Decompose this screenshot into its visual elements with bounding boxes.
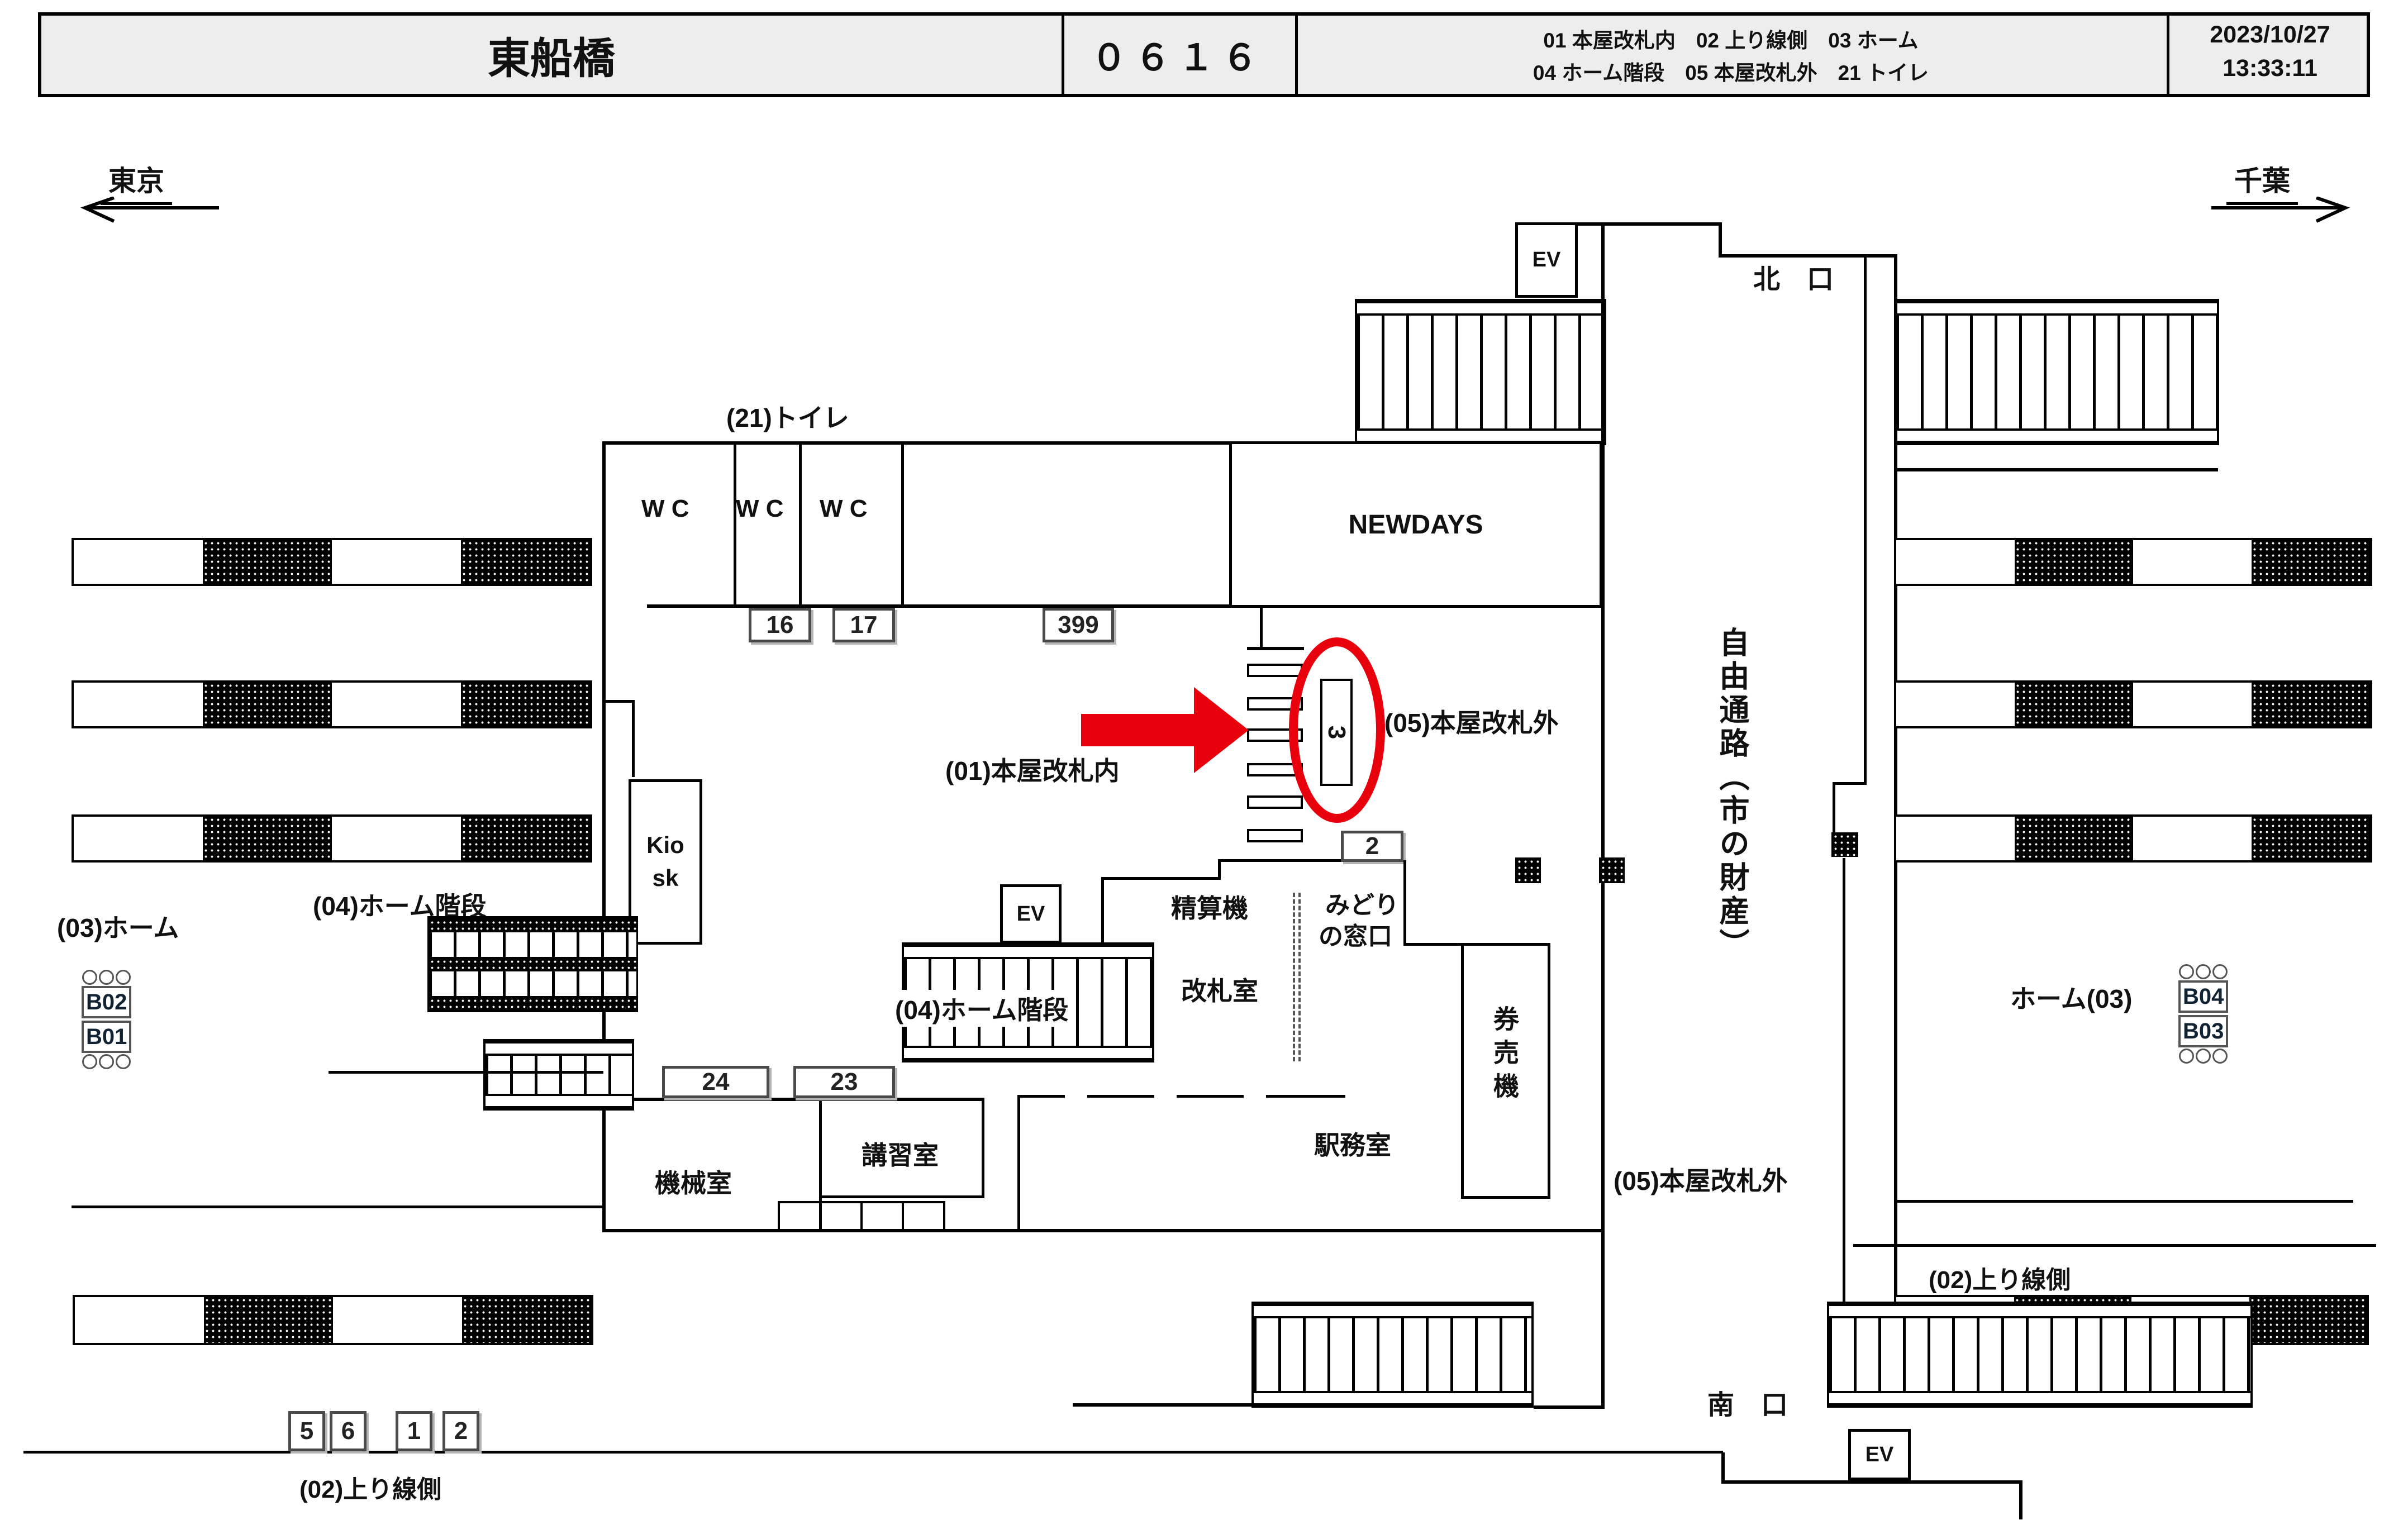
platform-roof-segment <box>203 817 332 860</box>
sign-circles <box>2179 964 2228 979</box>
wall <box>902 1201 904 1232</box>
east-arrow-icon <box>2207 197 2352 230</box>
north-stairs-east <box>1894 299 2219 445</box>
stair-rail <box>1829 1391 2250 1405</box>
corridor-east-inner-wall <box>1864 254 1867 785</box>
platform-bar <box>73 1295 593 1345</box>
gate-office-dashed-boundary <box>1293 893 1301 1061</box>
wall <box>1534 1405 1605 1409</box>
wall <box>901 441 904 607</box>
camera-1-number: 1 <box>407 1417 421 1445</box>
stair-rail <box>1829 1304 2250 1318</box>
wc-label-2: W C <box>736 495 784 523</box>
track-line <box>329 1071 603 1074</box>
wall <box>1403 943 1550 946</box>
midori-window-label-line1: みどり <box>1325 885 1399 921</box>
platform-roof-segment <box>2252 683 2370 726</box>
platform-bar <box>1894 680 2372 728</box>
wall <box>819 1098 822 1232</box>
platform-roof-segment <box>2015 817 2133 860</box>
platform-segment <box>2133 683 2252 726</box>
stair-rail <box>429 918 636 932</box>
elevator-center: EV <box>1000 884 1062 944</box>
wall <box>1578 222 1719 226</box>
wall <box>1218 859 1345 862</box>
wall <box>799 441 802 607</box>
outside-gates-label-upper: (05)本屋改札外 <box>1384 703 1559 740</box>
wall <box>1087 1095 1154 1098</box>
header-bar: 東船橋 ０６１６ 01 本屋改札内 02 上り線側 03 ホーム 04 ホーム階… <box>38 12 2370 97</box>
platform-segment <box>74 540 203 584</box>
west-platform-stairs-lower <box>483 1039 634 1111</box>
track-line <box>1853 1244 2376 1247</box>
kiosk-label-line2: sk <box>653 862 679 895</box>
kiosk-label-line1: Kio <box>646 829 684 862</box>
platform-roof-segment <box>462 1297 591 1343</box>
newdays-store: NEWDAYS <box>1229 441 1602 608</box>
machine-room-label: 機械室 <box>655 1163 732 1200</box>
platform-stairs-center-label: (04)ホーム階段 <box>893 990 1070 1027</box>
pillar <box>1515 857 1541 883</box>
camera-box-B01[interactable]: B01 <box>82 1021 131 1053</box>
wall <box>632 700 635 777</box>
location-codes-line2: 04 ホーム階段 05 本屋改札外 21 トイレ <box>1295 56 2167 86</box>
stair-rail <box>429 996 636 1011</box>
outside-gates-label-lower: (05)本屋改札外 <box>1614 1161 1788 1198</box>
kiosk: Kio sk <box>629 779 702 945</box>
platform-bar <box>1894 538 2372 586</box>
midori-window-label-line2: の窓口 <box>1319 916 1392 952</box>
platform-segment <box>332 817 461 860</box>
wall <box>1403 860 1406 945</box>
newdays-label: NEWDAYS <box>1349 509 1483 540</box>
camera-5-number: 5 <box>300 1417 313 1445</box>
wall <box>1833 782 1866 785</box>
wall <box>1461 943 1464 1199</box>
wall <box>1719 222 1722 258</box>
platform-bar <box>72 680 592 728</box>
wall <box>1894 468 2218 471</box>
training-room-label: 講習室 <box>862 1135 939 1172</box>
camera-6-number: 6 <box>341 1417 355 1445</box>
platform-segment <box>75 1297 204 1343</box>
platform-roof-segment <box>204 1297 333 1343</box>
camera-box-B03[interactable]: B03 <box>2178 1015 2228 1047</box>
ticket-gate <box>1247 829 1303 842</box>
stair-treads <box>429 971 636 996</box>
wall <box>1833 782 1835 833</box>
stair-treads <box>1896 316 2217 428</box>
camera-box-B04[interactable]: B04 <box>2178 980 2228 1013</box>
pillar <box>1599 857 1625 883</box>
track-line <box>1894 1200 2353 1203</box>
platform-roof-segment <box>461 817 590 860</box>
platform-roof-segment <box>2252 540 2370 584</box>
stair-rail <box>904 945 1152 959</box>
sign-circles <box>82 970 131 985</box>
platform-roof-segment <box>203 683 332 726</box>
platform-segment <box>1896 540 2015 584</box>
camera-B03-number: B03 <box>2183 1019 2224 1043</box>
platform-segment <box>333 1297 462 1343</box>
stair-rail <box>1896 428 2217 443</box>
west-platform-stairs-upper <box>427 916 638 1012</box>
wall <box>1073 1403 1254 1407</box>
stair-rail <box>1357 301 1604 316</box>
platform-segment <box>74 683 203 726</box>
station-office-label: 駅務室 <box>1314 1125 1391 1162</box>
stair-rail <box>904 1046 1152 1060</box>
platform-roof-segment <box>2015 683 2133 726</box>
sign-circles <box>82 1054 131 1069</box>
stair-treads <box>486 1056 632 1094</box>
track-line <box>23 1451 1723 1454</box>
south-stairs-west <box>1251 1302 1534 1408</box>
wall <box>1020 1095 1065 1098</box>
platform-segment <box>1896 817 2015 860</box>
wall <box>1101 877 1221 880</box>
camera-box-2-midori[interactable]: 2 <box>1341 831 1403 862</box>
elevator-center-label: EV <box>1017 902 1045 926</box>
platform-segment <box>332 683 461 726</box>
camera-box-2-track[interactable]: 2 <box>442 1411 479 1451</box>
north-exit-label: 北 口 <box>1698 254 1888 299</box>
sign-b04-b03: B04 B03 <box>2178 964 2228 1064</box>
wall <box>1843 858 1845 1305</box>
pillar <box>1831 832 1858 857</box>
platform-bar <box>72 814 592 863</box>
building-south-wall <box>602 1229 1605 1232</box>
south-stairs-east <box>1827 1302 2253 1408</box>
stair-treads <box>1829 1318 2250 1391</box>
inside-gates-label: (01)本屋改札内 <box>945 751 1120 788</box>
highlight-circle-icon <box>1285 634 1391 827</box>
sign-circles <box>2179 1049 2228 1064</box>
stair-rail <box>1254 1391 1531 1405</box>
camera-B01-number: B01 <box>86 1025 127 1049</box>
stair-rail <box>1896 301 2217 316</box>
toilet-label: (21)トイレ <box>726 398 849 435</box>
platform-roof-segment <box>2015 540 2133 584</box>
platform-bar <box>1894 814 2372 863</box>
camera-box-16[interactable]: 16 <box>749 608 811 642</box>
platform-03-east-label: ホーム(03) <box>2010 979 2132 1016</box>
camera-B04-number: B04 <box>2183 984 2224 1009</box>
up-line-west-label: (02)上り線側 <box>299 1469 441 1505</box>
stair-rail <box>429 957 636 971</box>
free-passage-label: 自由通路（市の財産） <box>1710 627 1754 1018</box>
wall <box>1177 1095 1244 1098</box>
camera-box-1[interactable]: 1 <box>396 1411 432 1451</box>
camera-box-24[interactable]: 24 <box>662 1066 769 1098</box>
platform-segment <box>1896 683 2015 726</box>
stair-rail <box>486 1041 632 1056</box>
camera-box-5[interactable]: 5 <box>288 1411 325 1451</box>
wall <box>982 1098 984 1198</box>
wall <box>860 1201 863 1232</box>
platform-bar <box>72 538 592 586</box>
station-map-page: 東船橋 ０６１６ 01 本屋改札内 02 上り線側 03 ホーム 04 ホーム階… <box>0 0 2408 1520</box>
header-time: 13:33:11 <box>2167 55 2373 82</box>
platform-roof-segment <box>203 540 332 584</box>
plat-segment <box>2133 817 2252 860</box>
stair-treads <box>429 932 636 957</box>
wall <box>2019 1480 2022 1519</box>
wall <box>819 1195 984 1198</box>
wall <box>1721 1480 2022 1484</box>
wall <box>1461 1196 1550 1199</box>
building-west-wall <box>602 441 606 1232</box>
elevator-south: EV <box>1848 1429 1911 1480</box>
platform-segment <box>74 817 203 860</box>
wall <box>943 1201 945 1232</box>
wall <box>734 441 736 607</box>
stair-rail <box>486 1094 632 1108</box>
platform-03-west-label: (03)ホーム <box>57 908 179 945</box>
platform-roof-segment <box>2249 1297 2367 1343</box>
platform-roof-segment <box>461 683 590 726</box>
camera-399-number: 399 <box>1058 611 1098 639</box>
camera-box-23[interactable]: 23 <box>793 1066 895 1098</box>
wall <box>1721 1452 1725 1483</box>
camera-box-17[interactable]: 17 <box>832 608 895 642</box>
gate-office-label: 改札室 <box>1181 971 1258 1008</box>
gate-line <box>1260 606 1263 649</box>
camera-2-number: 2 <box>1365 832 1379 860</box>
camera-box-399[interactable]: 399 <box>1043 608 1114 642</box>
station-code: ０６１６ <box>1062 16 1295 94</box>
camera-2-track-number: 2 <box>454 1417 468 1445</box>
wall <box>1548 943 1550 1199</box>
north-stairs-west <box>1355 299 1606 445</box>
camera-23-number: 23 <box>831 1068 858 1096</box>
platform-segment <box>332 540 461 584</box>
wall <box>602 700 635 703</box>
corridor-east-wall <box>1894 254 1897 1305</box>
wc-label-3: W C <box>820 495 868 523</box>
platform-segment <box>2133 540 2252 584</box>
wall <box>1017 1095 1020 1232</box>
stair-treads <box>1357 316 1604 428</box>
elevator-north: EV <box>1515 222 1578 298</box>
platform-roof-segment <box>461 540 590 584</box>
up-line-east-label: (02)上り線側 <box>1929 1260 2071 1295</box>
camera-24-number: 24 <box>702 1068 730 1096</box>
wall <box>1266 1095 1345 1098</box>
west-arrow-icon <box>78 197 223 230</box>
camera-17-number: 17 <box>850 611 878 639</box>
elevator-south-label: EV <box>1866 1443 1894 1467</box>
wall <box>778 1201 780 1232</box>
header-date: 2023/10/27 <box>2167 21 2373 49</box>
wall <box>1101 877 1104 944</box>
camera-box-B02[interactable]: B02 <box>82 986 131 1018</box>
elevator-north-label: EV <box>1533 248 1561 272</box>
stair-rail <box>1254 1304 1531 1318</box>
platform-roof-segment <box>2252 817 2370 860</box>
station-name: 東船橋 <box>41 16 1062 94</box>
stair-treads <box>1254 1318 1531 1391</box>
ticket-machines-label: 券売機 <box>1486 1006 1523 1190</box>
camera-B02-number: B02 <box>86 990 127 1014</box>
track-line <box>72 1205 603 1208</box>
camera-16-number: 16 <box>767 611 794 639</box>
camera-box-6[interactable]: 6 <box>330 1411 367 1451</box>
location-codes-line1: 01 本屋改札内 02 上り線側 03 ホーム <box>1295 23 2167 54</box>
wc-label-1: W C <box>641 495 689 523</box>
fare-adjustment-label: 精算機 <box>1171 888 1248 925</box>
sign-b02-b01: B02 B01 <box>82 970 131 1069</box>
